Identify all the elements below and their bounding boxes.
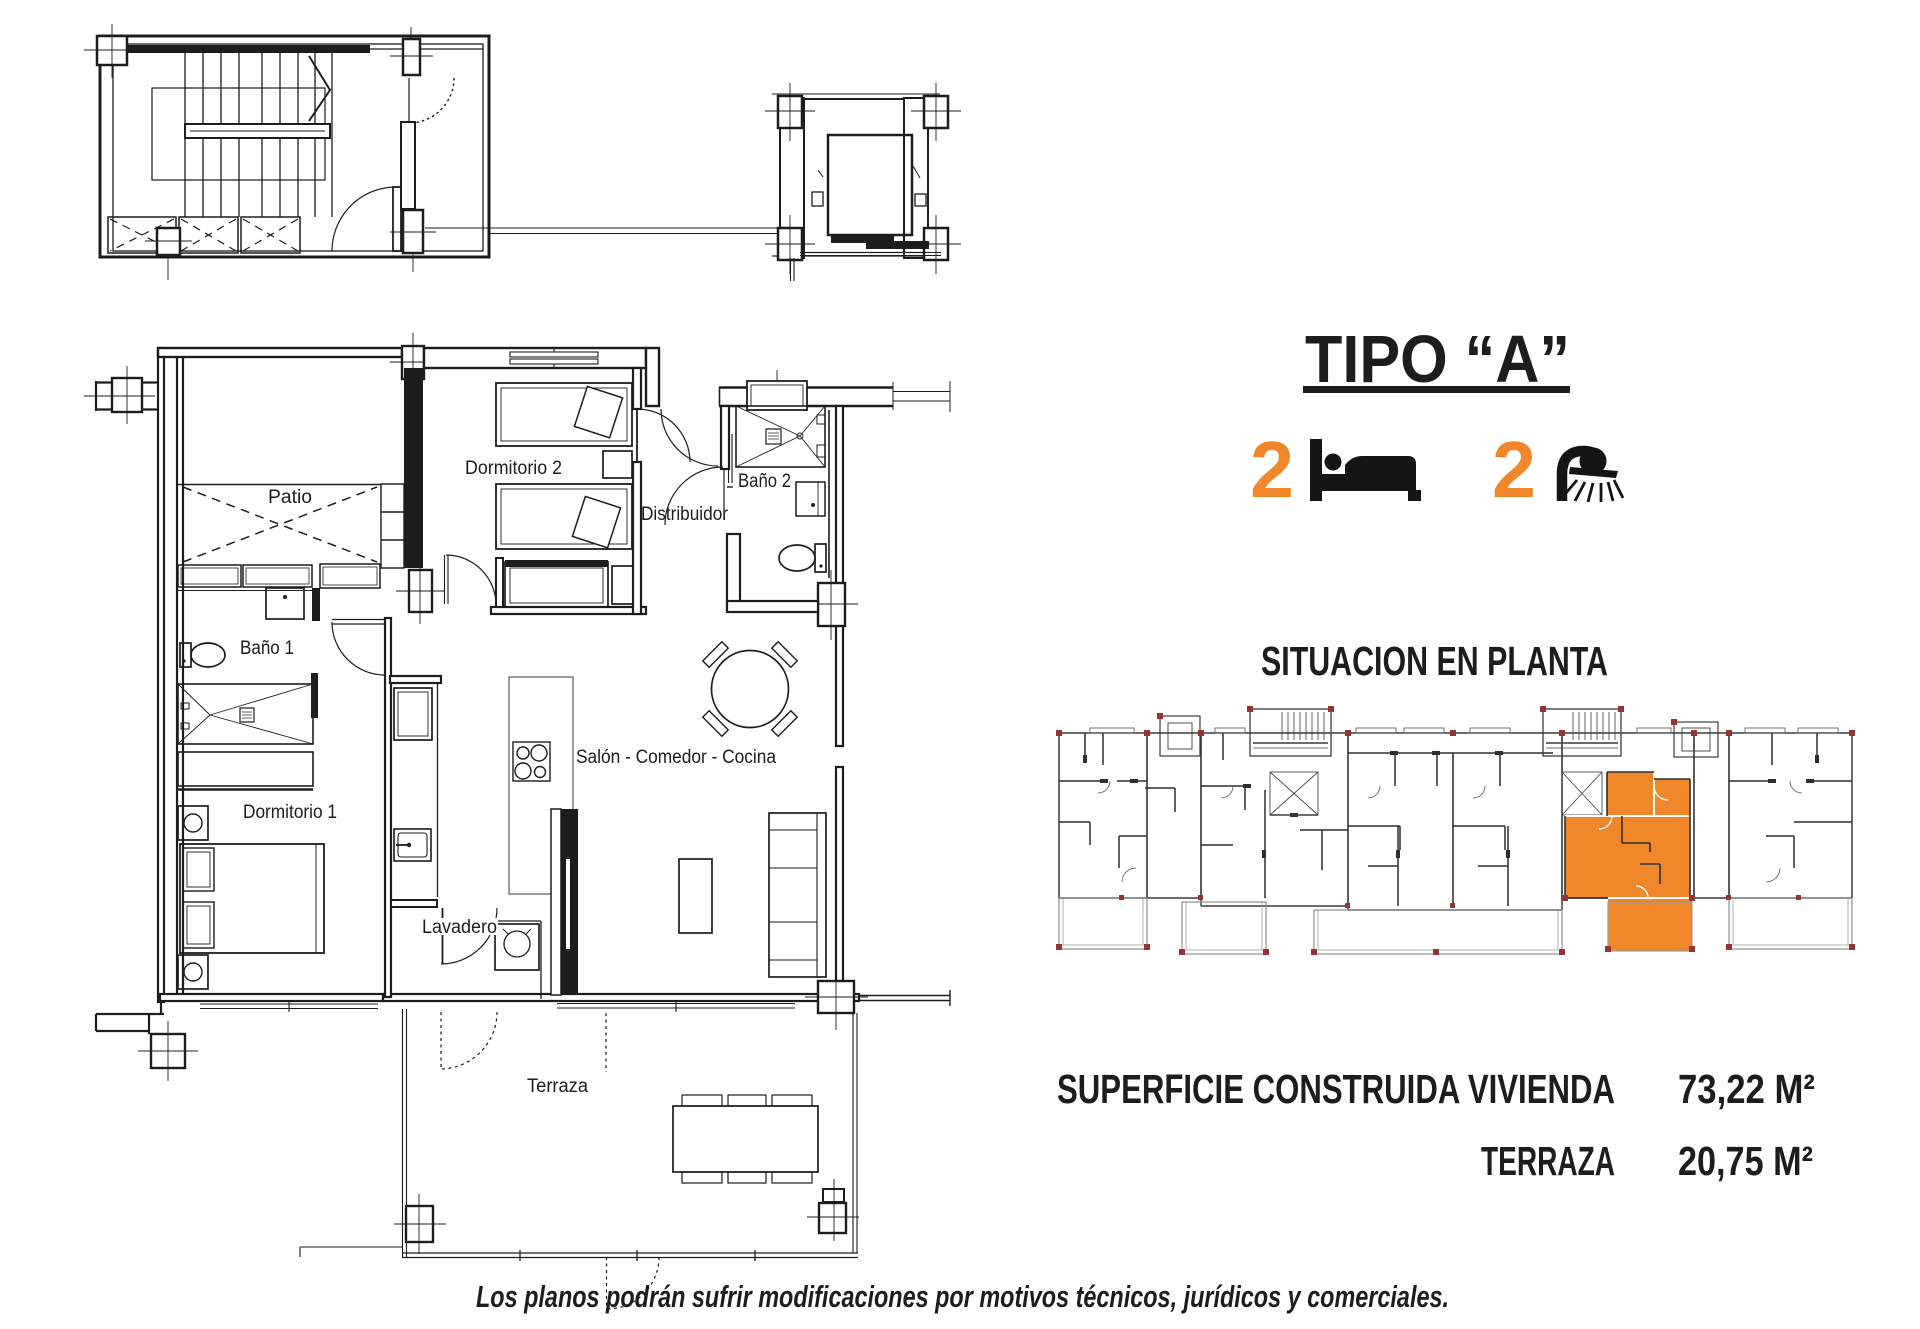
svg-text:SITUACION EN PLANTA: SITUACION EN PLANTA: [1261, 638, 1608, 684]
svg-text:Lavadero: Lavadero: [422, 917, 497, 938]
svg-text:SUPERFICIE CONSTRUIDA VIVIENDA: SUPERFICIE CONSTRUIDA VIVIENDA: [1057, 1066, 1615, 1112]
svg-text:Los planos podrán sufrir modif: Los planos podrán sufrir modificaciones …: [476, 1279, 1449, 1314]
svg-text:TERRAZA: TERRAZA: [1481, 1138, 1615, 1184]
svg-text:73,22 M²: 73,22 M²: [1678, 1066, 1815, 1112]
svg-text:Distribuidor: Distribuidor: [641, 504, 729, 525]
svg-text:20,75 M²: 20,75 M²: [1678, 1138, 1813, 1184]
svg-text:Dormitorio 2: Dormitorio 2: [465, 458, 562, 479]
svg-text:2: 2: [1250, 425, 1294, 514]
svg-text:Baño 1: Baño 1: [240, 638, 294, 659]
svg-text:Baño 2: Baño 2: [738, 471, 791, 492]
svg-text:Salón - Comedor - Cocina: Salón - Comedor - Cocina: [576, 747, 776, 768]
svg-text:Dormitorio 1: Dormitorio 1: [243, 802, 337, 823]
svg-text:TIPO “A”: TIPO “A”: [1305, 322, 1570, 397]
svg-text:Terraza: Terraza: [527, 1076, 588, 1097]
svg-text:Patio: Patio: [268, 487, 312, 508]
svg-text:2: 2: [1492, 425, 1536, 514]
